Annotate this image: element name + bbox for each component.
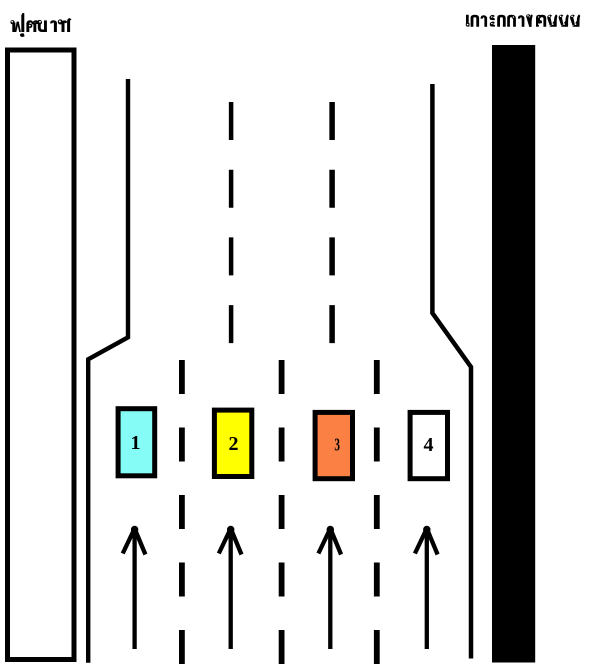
svg-text:2: 2 — [229, 433, 239, 455]
svg-text:3: 3 — [334, 436, 340, 455]
svg-text:1: 1 — [131, 432, 141, 454]
svg-text:4: 4 — [424, 434, 434, 456]
